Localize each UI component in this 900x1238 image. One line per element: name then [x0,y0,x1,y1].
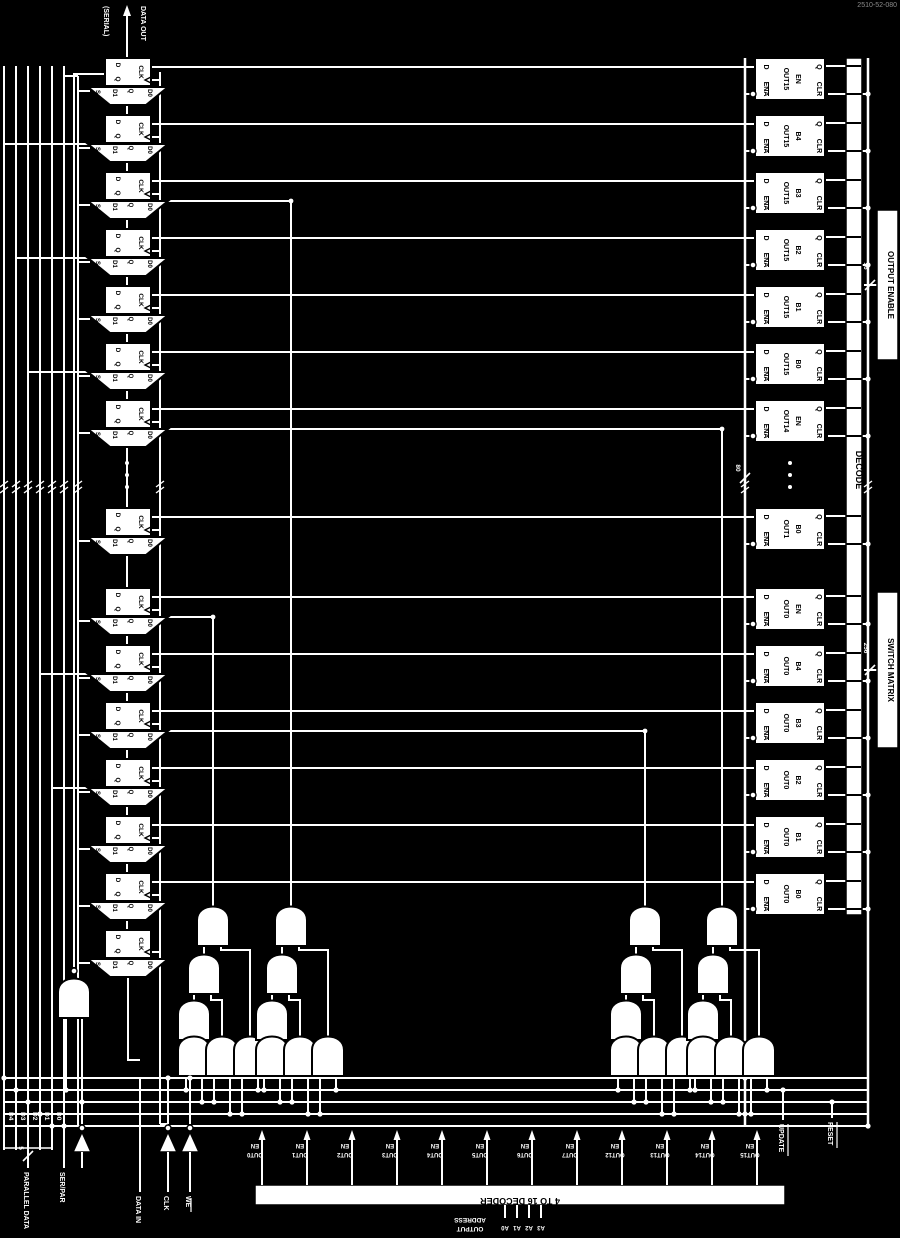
label: OUT0 [782,714,789,733]
label: D1 [111,431,117,439]
junction-dot [865,148,870,153]
label: Q [127,961,133,966]
label: ENA [762,82,769,97]
decoder-output-label: EN [296,1142,304,1148]
junction-dot [720,427,725,432]
decoder-output-label: OUT14 [695,1151,715,1157]
label: Q [114,948,121,953]
decoder-output-label: OUT7 [561,1151,578,1157]
label: D1 [111,260,117,268]
label: CLK [137,65,144,79]
up-arrow [619,1130,626,1140]
label: Q [127,904,133,909]
label: CLK [137,766,144,780]
inverter-bubble [750,906,756,912]
clock-gate [58,979,90,1019]
label: EN [794,604,801,614]
label: D0 [146,203,152,211]
junction-dot [125,461,129,465]
label: D0 [146,790,152,798]
up-arrow [349,1130,356,1140]
up-arrow [664,1130,671,1140]
label: Q [114,418,121,423]
logic-diagram: 80DATA OUT(SERIAL)5D4D3D2D1D0PARALLEL DA… [0,0,900,1238]
junction-dot [643,729,648,734]
label: Q [815,178,822,184]
label: Q [815,594,822,600]
label: OUT14 [782,410,789,433]
pin-A3: A3 [537,1224,545,1230]
label: S [94,261,100,265]
junction-dot [708,1099,713,1104]
label: CLK [137,350,144,364]
label: D0 [146,539,152,547]
label: D [114,405,121,410]
pin-D2: D2 [31,1112,38,1121]
decoder-output-label: OUT12 [605,1151,625,1157]
label: S [94,432,100,436]
inverter-bubble [79,1125,85,1131]
wire [720,994,731,1036]
label: Q [815,235,822,241]
junction-dot [736,1111,741,1116]
label: Q [127,539,133,544]
and-gate [743,1037,775,1077]
label: D0 [146,260,152,268]
label: D0 [146,374,152,382]
label: D0 [146,847,152,855]
label: CLK [137,236,144,250]
decoder-output-label: EN [521,1142,529,1148]
label: S [94,677,100,681]
label: Q [815,651,822,657]
label: Q [114,133,121,138]
junction-dot [25,1099,30,1104]
pin-A0: A0 [501,1224,509,1230]
inverter-bubble [750,433,756,439]
label: ENA [762,367,769,382]
decoder-output-label: OUT3 [381,1151,398,1157]
junction-dot [865,376,870,381]
junction-dot [289,1099,294,1104]
inverter-bubble [750,849,756,855]
label: Q [815,822,822,828]
label: CLR [815,726,822,740]
up-arrow [394,1130,401,1140]
bus-width-80: 80 [734,464,741,472]
decoder-output-label: EN [386,1142,394,1148]
label: CLK [137,595,144,609]
label: S [94,204,100,208]
decoder-output-label: EN [251,1142,259,1148]
label: B0 [794,360,801,369]
and-gate [178,1001,210,1041]
label: S [94,734,100,738]
junction-dot [671,1111,676,1116]
label: Q [114,361,121,366]
label: D [114,120,121,125]
parallel-data-label: PARALLEL DATA [22,1172,29,1229]
label: D1 [111,539,117,547]
label: D [114,593,121,598]
label: D1 [111,790,117,798]
junction-dot [333,1087,338,1092]
decoder-output-label: OUT4 [426,1151,443,1157]
label: D1 [111,847,117,855]
wire [299,946,328,1036]
label: B3 [794,719,801,728]
label: EN [794,74,801,84]
label: CLR [815,82,822,96]
label: D1 [111,904,117,912]
label: D [762,349,769,354]
label: D [762,64,769,69]
junction-dot [865,735,870,740]
inverter-bubble [165,1125,171,1131]
label: D1 [111,317,117,325]
and-gate [620,955,652,995]
junction-dot [865,541,870,546]
inverter-bubble [750,148,756,154]
label: OUT0 [782,657,789,676]
inverter-bubble [750,792,756,798]
label: Q [114,777,121,782]
decoder-output-label: EN [431,1142,439,1148]
label: B0 [794,890,801,899]
label: Q [114,190,121,195]
junction-dot [261,1087,266,1092]
data-out-label: DATA OUT [139,6,146,42]
label: D [114,764,121,769]
label: S [94,90,100,94]
label: D [762,765,769,770]
junction-dot [1,1075,6,1080]
label: D [114,878,121,883]
junction-dot [317,1111,322,1116]
and-gate-apex [706,907,738,947]
label: S [94,375,100,379]
label: OUT15 [782,182,789,205]
and-gate [188,955,220,995]
junction-dot [720,1099,725,1104]
junction-dot [764,1087,769,1092]
decoder-output-label: EN [701,1142,709,1148]
label: B1 [794,833,801,842]
label: ENA [762,532,769,547]
label: D1 [111,146,117,154]
label: Q [815,765,822,771]
label: Q [815,708,822,714]
up-arrow [529,1130,536,1140]
label: CLR [815,253,822,267]
inverter-bubble [187,1125,193,1131]
label: D [762,651,769,656]
label: CLK [137,937,144,951]
wire [643,994,654,1036]
label: B2 [794,246,801,255]
bus-width-5: 5 [17,1146,24,1150]
decoder-output-label: EN [656,1142,664,1148]
label: D [114,291,121,296]
junction-dot [643,1099,648,1104]
label: CLR [815,310,822,324]
label: Q [815,514,822,520]
label: ENA [762,840,769,855]
decoder-output-label: OUT1 [291,1151,308,1157]
bus-width-256: 256 [862,643,869,654]
label: Q [127,676,133,681]
junction-dot [865,906,870,911]
label: D1 [111,203,117,211]
label: CLR [815,783,822,797]
decoder-output-label: EN [566,1142,574,1148]
logic-diagram-page: 2510-52-080 80DATA OUT(SERIAL)5D4D3D2D1D… [0,0,900,1238]
junction-dot [631,1099,636,1104]
clk-label: CLK [162,1196,169,1210]
junction-dot [615,1087,620,1092]
output-address-label: ADDRESS [453,1216,485,1223]
and-gate [610,1001,642,1041]
up-arrow [439,1130,446,1140]
label: D0 [146,317,152,325]
label: OUT15 [782,353,789,376]
label: Q [815,349,822,355]
label: ENA [762,196,769,211]
pin-D4: D4 [7,1112,14,1121]
junction-dot [125,473,129,477]
label: CLK [137,709,144,723]
label: OUT15 [782,296,789,319]
inverter-bubble [71,968,77,974]
label: CLK [137,407,144,421]
label: D [114,63,121,68]
junction-dot [211,1099,216,1104]
label: D [762,178,769,183]
label: Q [127,847,133,852]
bus-width-16: 16 [862,262,869,270]
junction-dot [659,1111,664,1116]
inverter-bubble [750,541,756,547]
label: D [762,292,769,297]
junction-dot [742,1111,747,1116]
label: S [94,962,100,966]
label: S [94,147,100,151]
data-in-label: DATA IN [134,1196,141,1223]
label: Q [127,203,133,208]
pin-D1: D1 [43,1112,50,1121]
label: CLK [137,652,144,666]
inverter-bubble [750,376,756,382]
junction-dot [255,1087,260,1092]
inverter-bubble [750,735,756,741]
label: D [114,177,121,182]
label: Q [815,406,822,412]
label: D [114,821,121,826]
label: Q [114,247,121,252]
label: CLR [815,424,822,438]
label: ENA [762,897,769,912]
label: D [114,707,121,712]
data-out-arrow [123,5,131,16]
junction-dot [227,1111,232,1116]
inverter-bubble [750,678,756,684]
label: CLR [815,532,822,546]
label: ENA [762,253,769,268]
decoder-output-label: EN [476,1142,484,1148]
label: CLK [137,293,144,307]
junction-dot [289,199,294,204]
junction-dot [829,1099,834,1104]
label: S [94,848,100,852]
label: D1 [111,374,117,382]
junction-dot [305,1111,310,1116]
label: CLR [815,612,822,626]
up-arrow [754,1130,761,1140]
inverter-bubble [750,621,756,627]
label: OUT1 [782,520,789,539]
label: OUT15 [782,239,789,262]
junction-dot [865,621,870,626]
label: S [94,905,100,909]
label: D [762,822,769,827]
junction-dot [61,1123,66,1128]
junction-dot [183,1087,188,1092]
junction-dot [687,1087,692,1092]
decoder-output-label: OUT13 [650,1151,670,1157]
label: D [114,234,121,239]
decoder-title: 4 TO 16 DECODER [480,1196,560,1206]
label: D0 [146,431,152,439]
decoder-output-label: OUT5 [471,1151,488,1157]
label: CLR [815,897,822,911]
label: OUT0 [782,771,789,790]
junction-dot [865,1123,870,1128]
pin-A2: A2 [525,1224,533,1230]
junction-dot [277,1099,282,1104]
label: Q [127,374,133,379]
inverter-gate [159,1132,177,1152]
pin-D3: D3 [19,1112,26,1121]
label: D [114,513,121,518]
data-out-label2: (SERIAL) [102,6,109,36]
label: CLK [137,179,144,193]
label: D [114,650,121,655]
wire [168,429,722,906]
label: B2 [794,776,801,785]
label: S [94,620,100,624]
label: Q [114,526,121,531]
wire [211,994,222,1036]
pin-D0: D0 [55,1112,62,1121]
label: D0 [146,961,152,969]
label: D1 [111,733,117,741]
wire [168,201,291,906]
junction-dot [187,1075,192,1080]
decoder-output-label: OUT2 [336,1151,353,1157]
junction-dot [865,319,870,324]
label: Q [114,304,121,309]
inverter-bubble [750,205,756,211]
label: D1 [111,89,117,97]
label: Q [127,790,133,795]
label: EN [794,416,801,426]
label: D [762,406,769,411]
label: CLK [137,880,144,894]
label: Q [114,663,121,668]
label: D0 [146,619,152,627]
we-label: WE [184,1196,191,1208]
label: D1 [111,619,117,627]
label: CLK [137,515,144,529]
junction-dot [692,1087,697,1092]
label: CLR [815,669,822,683]
label: D0 [146,676,152,684]
junction-dot [865,849,870,854]
label: D0 [146,89,152,97]
and-gate [697,955,729,995]
label: Q [127,317,133,322]
label: B1 [794,303,801,312]
label: Q [114,834,121,839]
switch-matrix-label: SWITCH MATRIX [886,638,895,703]
junction-dot [125,485,129,489]
label: CLK [137,122,144,136]
label: S [94,540,100,544]
label: Q [127,260,133,265]
label: Q [114,891,121,896]
label: ENA [762,669,769,684]
wire [289,994,300,1036]
label: OUT15 [782,68,789,91]
label: D1 [111,676,117,684]
label: D [114,348,121,353]
decoder-output-label: OUT15 [740,1151,760,1157]
label: ENA [762,310,769,325]
label: D0 [146,146,152,154]
label: S [94,318,100,322]
junction-dot [865,91,870,96]
and-gate-apex [275,907,307,947]
label: Q [815,121,822,127]
label: OUT0 [782,828,789,847]
wire [168,617,213,906]
update-label: UPDATE [777,1124,784,1153]
label: ENA [762,139,769,154]
label: D0 [146,733,152,741]
label: CLR [815,840,822,854]
decoder-output-label: EN [341,1142,349,1148]
reset-label: RESET [826,1122,833,1146]
junction-dot [865,433,870,438]
label: D [114,935,121,940]
label: B3 [794,189,801,198]
label: OUT15 [782,125,789,148]
label: S [94,791,100,795]
inverter-bubble [750,262,756,268]
label: D [762,594,769,599]
and-gate [256,1001,288,1041]
ser-par-label: SER/PAR [58,1172,65,1203]
label: D [762,235,769,240]
junction-dot [199,1099,204,1104]
junction-dot [865,678,870,683]
wire [653,946,682,1036]
up-arrow [574,1130,581,1140]
label: B4 [794,132,801,141]
junction-dot [865,792,870,797]
label: CLR [815,367,822,381]
label: ENA [762,783,769,798]
